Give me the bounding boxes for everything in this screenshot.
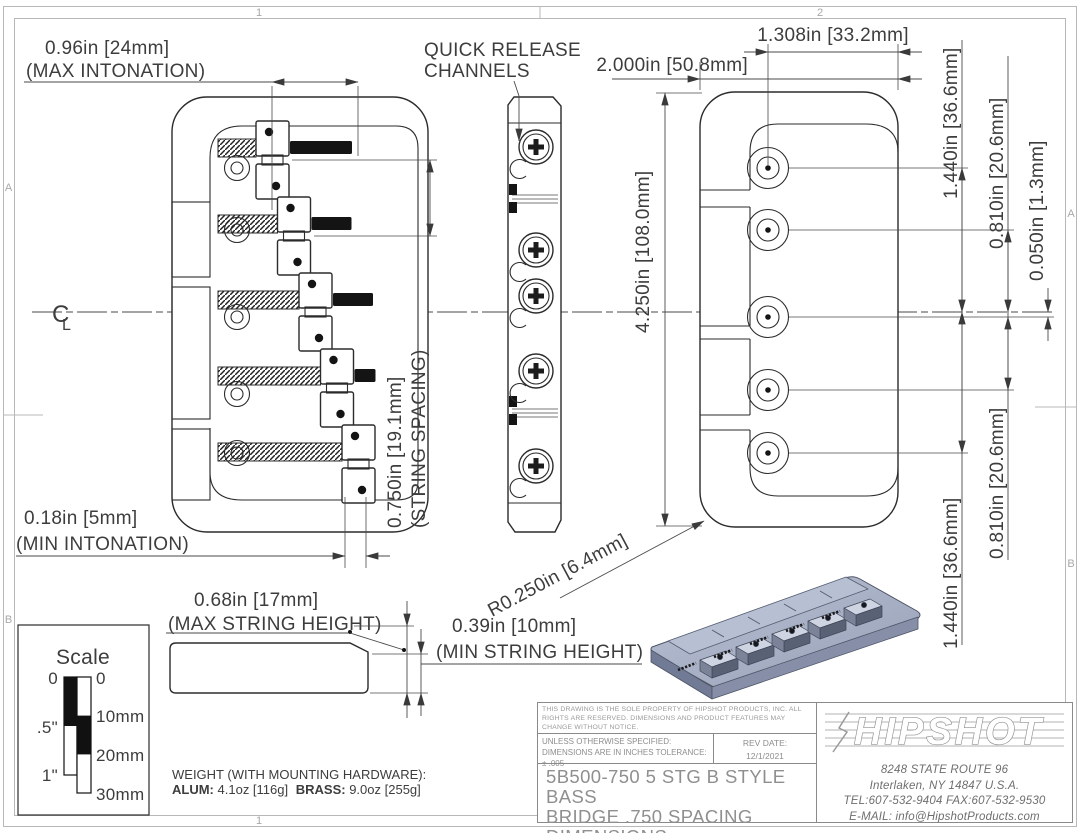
rev-date-label: REV DATE:	[714, 737, 816, 750]
dim-label: 1.440in [36.6mm]	[941, 497, 962, 649]
scale-tick: 0	[48, 669, 58, 688]
intonation-screw	[312, 217, 352, 230]
weight-brass-value: 9.0oz [255g]	[349, 782, 421, 797]
scale-tick: 0	[96, 669, 106, 688]
weight-alum-label: ALUM:	[172, 782, 214, 797]
scale-title: Scale	[56, 646, 110, 669]
weight-note: WEIGHT (WITH MOUNTING HARDWARE): ALUM: 4…	[172, 767, 452, 798]
dim-label: 0.68in [17mm]	[194, 590, 318, 611]
intonation-spring	[218, 291, 299, 309]
isometric-3d-view	[651, 577, 920, 699]
scale-bar-mm-black	[77, 716, 91, 755]
address-line1: 8248 STATE ROUTE 96	[817, 763, 1072, 779]
address-phone: TEL:607-532-9404 FAX:607-532-9530	[817, 794, 1072, 810]
dim-label: 2.000in [50.8mm]	[596, 55, 748, 76]
scale-tick: 30mm	[96, 785, 144, 804]
dimension-min-string-height: 0.39in [10mm] (MIN STRING HEIGHT)	[372, 616, 643, 716]
logo-text: HIPSHOT	[854, 711, 1044, 753]
intonation-screw	[290, 141, 352, 154]
scale-tick: 10mm	[96, 707, 144, 726]
tolerance-note: UNLESS OTHERWISE SPECIFIED: DIMENSIONS A…	[538, 734, 714, 763]
intonation-screw	[333, 293, 373, 306]
side-profile-view	[170, 643, 368, 693]
scale-tick: 20mm	[96, 746, 144, 765]
title-block-logo-area: HIPSHOT 8248 STATE ROUTE 96 Interlaken, …	[817, 703, 1072, 822]
engineering-drawing-sheet: 1 2 1 A B A B C L	[0, 0, 1080, 833]
legal-notice: THIS DRAWING IS THE SOLE PROPERTY OF HIP…	[538, 703, 816, 734]
address-line2: Interlaken, NY 14847 U.S.A.	[817, 779, 1072, 795]
dim-label: 0.96in [24mm]	[45, 38, 169, 59]
scale-bar-inches-black	[64, 677, 77, 726]
bottom-view-bridge	[700, 92, 898, 527]
zone-label-top-1: 1	[256, 7, 262, 19]
intonation-spring	[218, 215, 278, 233]
weight-brass-label: BRASS:	[296, 782, 346, 797]
hipshot-logo: HIPSHOT	[817, 704, 1072, 758]
dim-caption: (STRING SPACING)	[409, 349, 430, 528]
drawing-title: 5B500-750 5 STG B STYLE BASS BRIDGE .750…	[538, 764, 816, 833]
zone-label-right-a: A	[1067, 208, 1075, 220]
zone-label-top-2: 2	[817, 7, 823, 19]
weight-heading: WEIGHT (WITH MOUNTING HARDWARE):	[172, 767, 452, 782]
intonation-spring	[218, 443, 342, 461]
address-email: E-MAIL: info@HipshotProducts.com	[817, 810, 1072, 826]
zone-label-left-b: B	[5, 614, 12, 626]
rev-date-cell: REV DATE: 12/1/2021	[714, 734, 816, 763]
drawing-title-line1: 5B500-750 5 STG B STYLE BASS	[546, 767, 808, 807]
dim-label: 4.250in [108.0mm]	[633, 171, 654, 333]
dim-label: R0.250in [6.4mm]	[484, 530, 631, 621]
dimension-overall-length: 4.250in [108.0mm]	[633, 93, 702, 526]
zone-label-bottom-1: 1	[256, 815, 262, 827]
scale-tick: .5"	[37, 718, 58, 737]
side-view-bridge	[508, 97, 561, 532]
intonation-spring	[218, 367, 321, 385]
centerline-symbol-l: L	[62, 317, 71, 334]
dim-label: 0.39in [10mm]	[452, 616, 576, 637]
scale-legend: Scale 0 .5" 1" 0 10mm 20mm 30mm	[18, 625, 149, 815]
zone-label-right-b: B	[1067, 558, 1074, 570]
dimension-overall-width: 2.000in [50.8mm]	[596, 55, 922, 90]
dim-label: 0.050in [1.3mm]	[1027, 140, 1048, 281]
drawing-title-line3: DIMENSIONS	[546, 827, 808, 833]
dim-caption: (MAX INTONATION)	[26, 61, 205, 82]
dim-caption: (MIN INTONATION)	[16, 534, 189, 555]
zone-label-left-a: A	[5, 182, 13, 194]
title-block-left: THIS DRAWING IS THE SOLE PROPERTY OF HIP…	[538, 703, 817, 822]
dim-label: 0.810in [20.6mm]	[987, 97, 1008, 249]
dim-label: 0.750in [19.1mm]	[385, 376, 406, 528]
weight-alum-value: 4.1oz [116g]	[218, 782, 289, 797]
dim-label: 1.308in [33.2mm]	[757, 25, 909, 46]
rev-date-value: 12/1/2021	[714, 750, 816, 763]
drawing-title-line2: BRIDGE .750 SPACING	[546, 807, 808, 827]
callout-line2: CHANNELS	[424, 61, 530, 82]
dim-label: 0.18in [5mm]	[24, 508, 137, 529]
callout-line1: QUICK RELEASE	[424, 40, 581, 61]
scale-tick: 1"	[42, 766, 58, 785]
dim-label: 0.810in [20.6mm]	[987, 407, 1008, 559]
dim-caption: (MIN STRING HEIGHT)	[436, 642, 643, 663]
dimension-corner-radius: R0.250in [6.4mm]	[484, 521, 704, 621]
intonation-screw	[355, 369, 376, 382]
dim-label: 1.440in [36.6mm]	[941, 47, 962, 199]
title-block: THIS DRAWING IS THE SOLE PROPERTY OF HIP…	[537, 702, 1073, 823]
intonation-spring	[218, 139, 256, 157]
